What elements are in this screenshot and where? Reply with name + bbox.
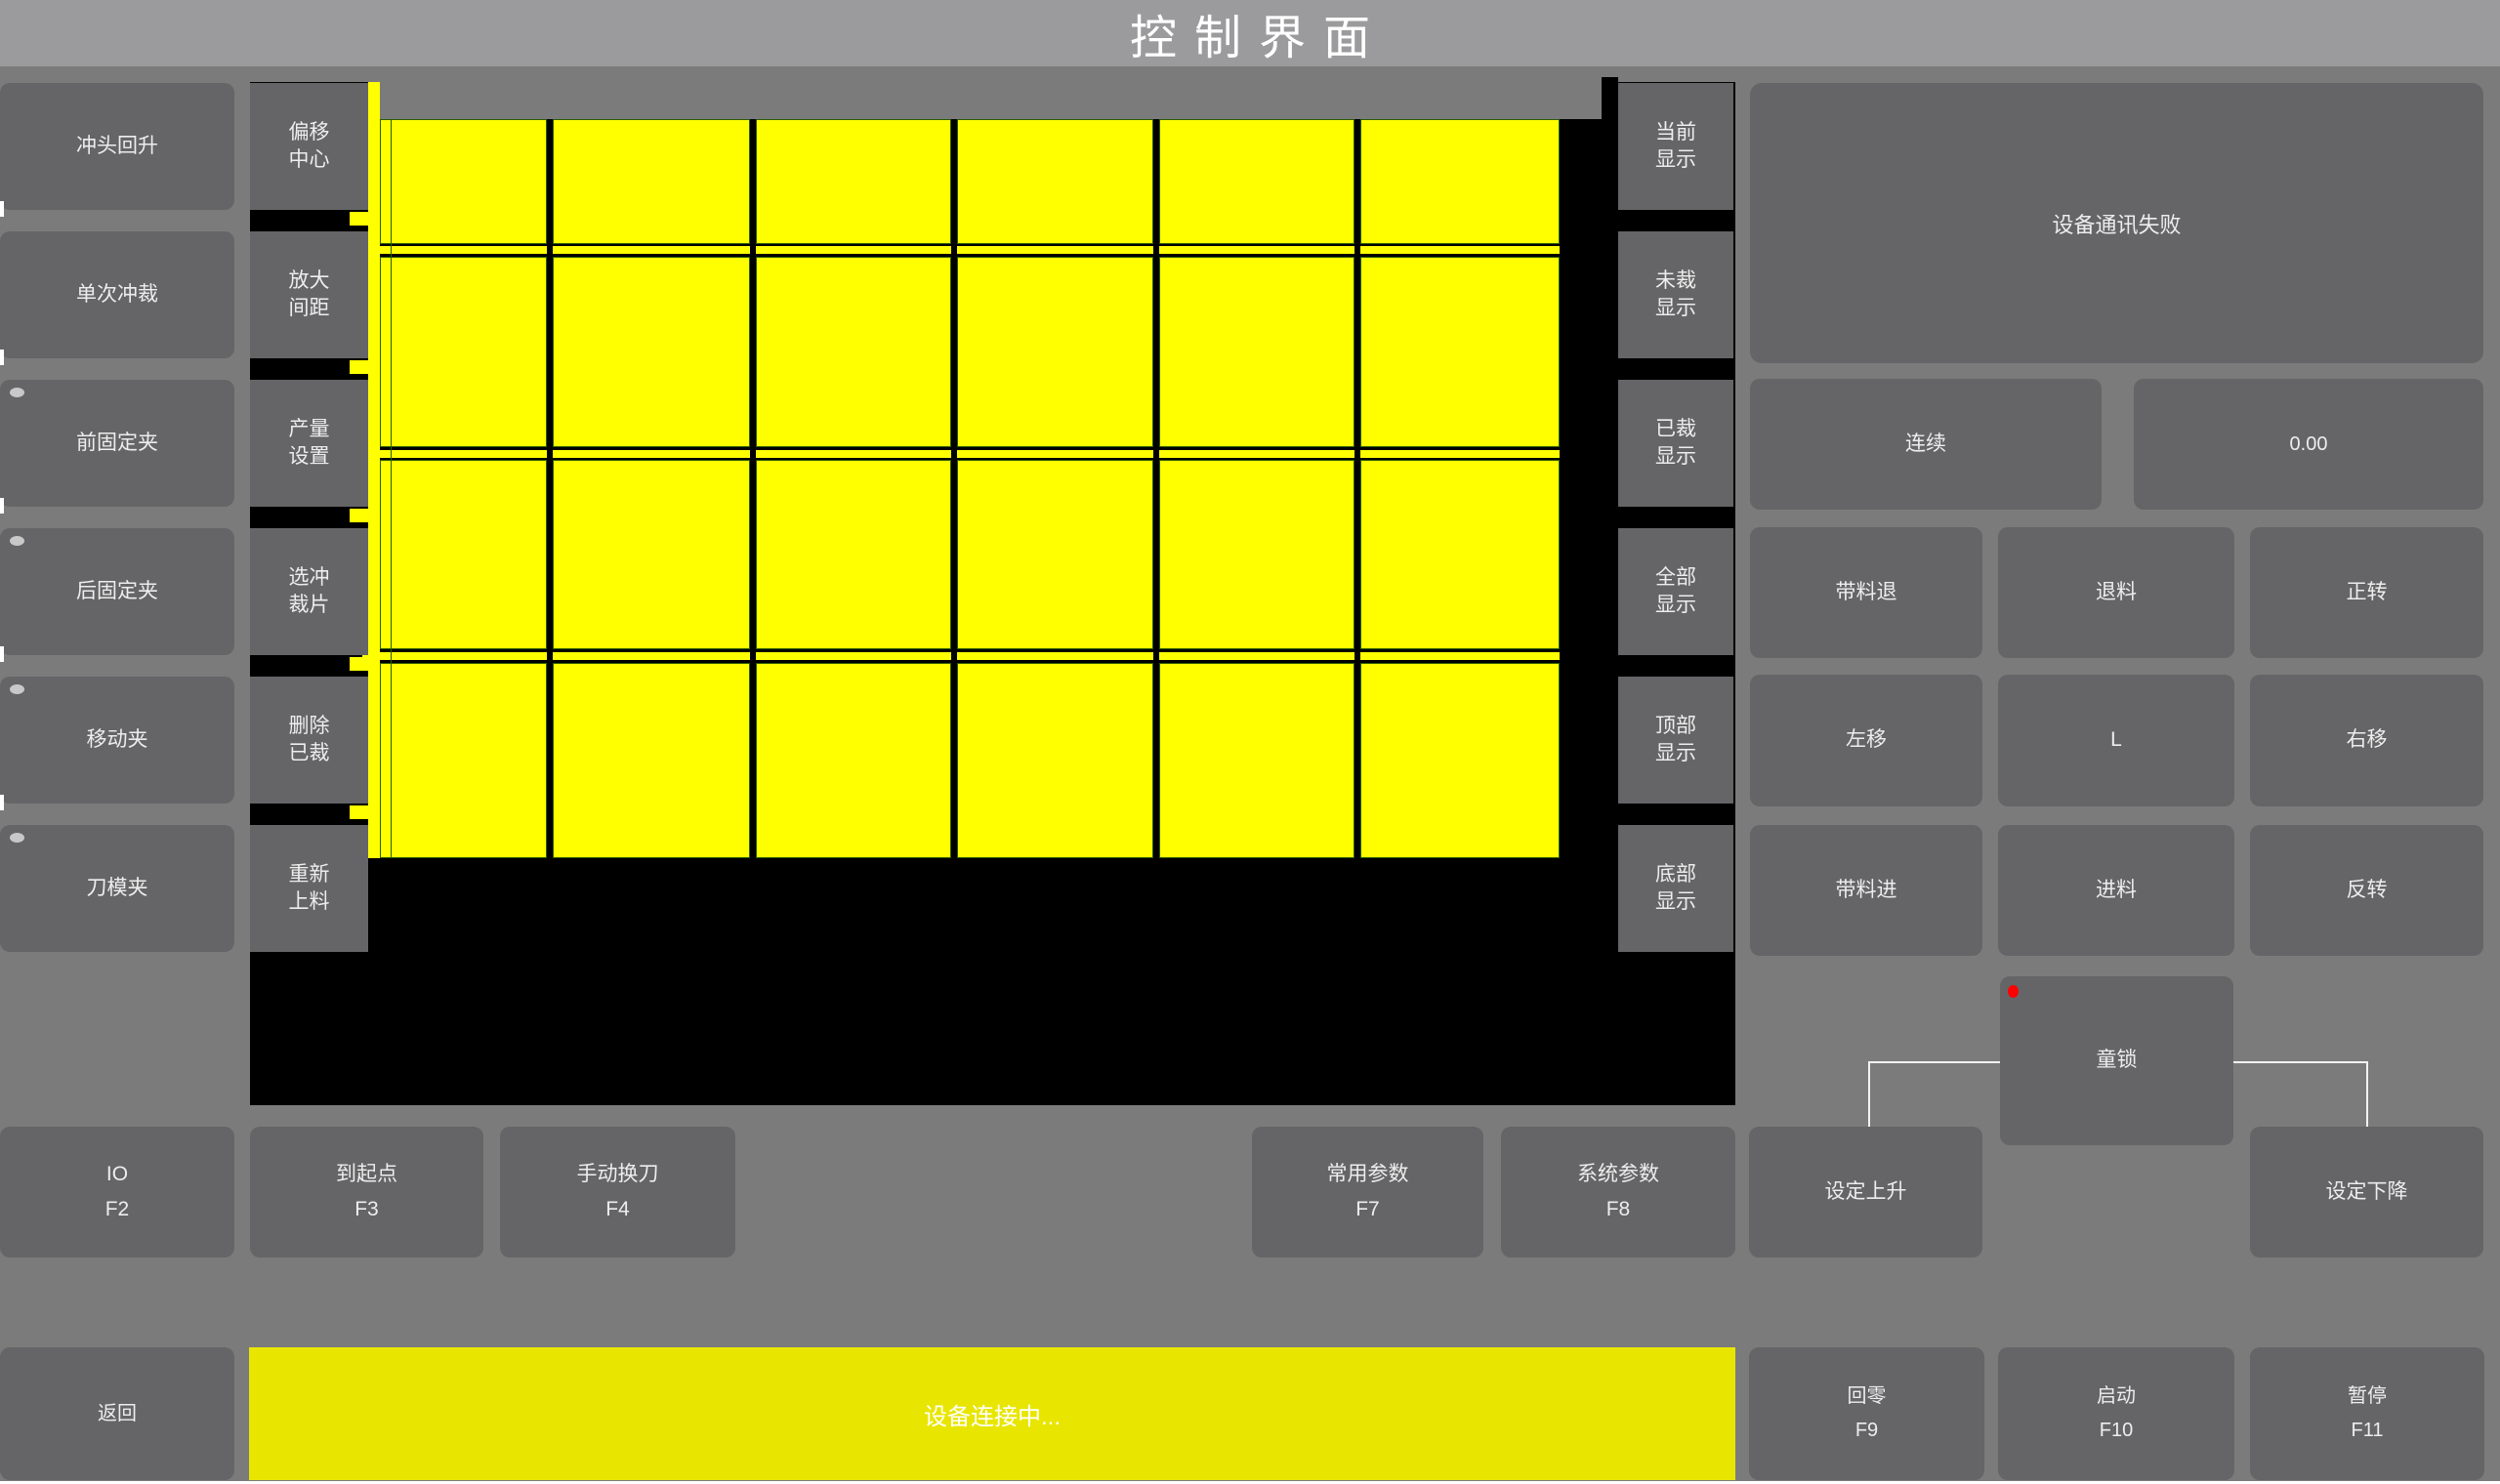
edge-tick-mark <box>0 350 4 365</box>
left-action-label: 刀模夹 <box>87 875 148 902</box>
cut-piece-r2-c4[interactable] <box>957 257 1153 447</box>
left-action-label: 后固定夹 <box>76 578 158 605</box>
bottom-key-label: 启动 <box>2097 1383 2136 1410</box>
display-filter-label-line: 全部 <box>1655 564 1696 592</box>
jog-button-r2-c2[interactable]: L <box>1998 675 2234 806</box>
jog-button-r1-c1[interactable]: 带料退 <box>1750 527 1982 658</box>
display-filter-label-line: 显示 <box>1655 592 1696 619</box>
edit-action-button-5[interactable]: 删除已裁 <box>250 677 368 804</box>
control-interface-screen: 控制界面 冲头回升单次冲裁前固定夹后固定夹移动夹刀模夹 偏移中心放大间距产量设置… <box>0 0 2500 1484</box>
speed-value-text: 0.00 <box>2290 432 2328 458</box>
edit-action-label-line: 裁片 <box>289 592 330 619</box>
status-message-panel: 设备通讯失败 <box>1750 83 2483 363</box>
edge-tick-mark <box>0 646 4 662</box>
function-key-button-2[interactable]: 到起点F3 <box>250 1127 483 1257</box>
function-key-code: F4 <box>605 1196 630 1223</box>
function-key-code: F8 <box>1606 1196 1631 1223</box>
jog-button-r1-c2[interactable]: 退料 <box>1998 527 2234 658</box>
state-indicator-icon <box>10 684 24 694</box>
function-key-label: 到起点 <box>336 1161 397 1188</box>
jog-button-r2-c3[interactable]: 右移 <box>2250 675 2483 806</box>
function-key-button-5[interactable]: 系统参数F8 <box>1501 1127 1735 1257</box>
function-key-code: F7 <box>1355 1196 1380 1223</box>
left-action-label: 冲头回升 <box>76 133 158 160</box>
cut-piece-r4-c6[interactable] <box>1360 663 1560 858</box>
left-action-label: 单次冲裁 <box>76 281 158 309</box>
edit-action-label-line: 偏移 <box>289 119 330 146</box>
edit-action-label-line: 间距 <box>289 295 330 322</box>
edge-tick-mark <box>0 201 4 217</box>
back-button-label: 返回 <box>98 1401 137 1427</box>
piece-inner-cut-line <box>391 119 392 858</box>
cut-piece-r2-c5[interactable] <box>1159 257 1354 447</box>
left-action-button-6[interactable]: 刀模夹 <box>0 825 234 952</box>
connection-status-text: 设备连接中... <box>924 1397 1061 1431</box>
cut-piece-r2-c3[interactable] <box>756 257 951 447</box>
bottom-key-label: 暂停 <box>2348 1383 2387 1410</box>
cut-piece-r4-c2[interactable] <box>553 663 750 858</box>
column-gap-strip <box>547 119 553 858</box>
cut-piece-r3-c5[interactable] <box>1159 460 1354 649</box>
left-action-label: 前固定夹 <box>76 430 158 457</box>
function-key-button-4[interactable]: 常用参数F7 <box>1252 1127 1483 1257</box>
state-indicator-icon <box>10 388 24 397</box>
jog-button-label: 进料 <box>2096 877 2137 904</box>
row-separator-band <box>362 652 1560 660</box>
display-filter-label-line: 已裁 <box>1655 416 1696 443</box>
display-filter-button-2[interactable]: 未裁显示 <box>1618 231 1733 358</box>
edit-action-label-line: 删除 <box>289 713 330 740</box>
canvas-top-right-notch <box>1602 77 1618 119</box>
connection-status-bar: 设备连接中... <box>249 1347 1735 1480</box>
display-filter-label-line: 显示 <box>1655 146 1696 174</box>
left-action-button-4[interactable]: 后固定夹 <box>0 528 234 655</box>
cut-piece-r1-c6[interactable] <box>1360 119 1560 244</box>
edit-action-button-4[interactable]: 选冲裁片 <box>250 528 368 655</box>
run-mode-button[interactable]: 连续 <box>1750 379 2102 510</box>
function-key-label: 手动换刀 <box>577 1161 659 1188</box>
childlock-connector-right-h <box>2233 1061 2368 1063</box>
jog-button-label: 带料退 <box>1836 579 1897 606</box>
cut-piece-r2-c6[interactable] <box>1360 257 1560 447</box>
edit-action-label-line: 重新 <box>289 861 330 888</box>
cut-piece-r3-c1[interactable] <box>380 460 547 649</box>
display-filter-label-line: 显示 <box>1655 443 1696 471</box>
row-separator-band <box>362 246 1560 254</box>
cut-piece-r4-c5[interactable] <box>1159 663 1354 858</box>
bottom-key-label: 回零 <box>1848 1383 1887 1410</box>
column-gap-strip <box>1153 119 1159 858</box>
bottom-key-button-2[interactable]: 启动F10 <box>1998 1347 2234 1480</box>
function-key-code: F3 <box>354 1196 379 1223</box>
speed-value-display: 0.00 <box>2134 379 2483 510</box>
left-action-label: 移动夹 <box>87 726 148 754</box>
strip-tab <box>350 212 368 226</box>
jog-button-label: 反转 <box>2347 877 2388 904</box>
back-button[interactable]: 返回 <box>0 1347 234 1480</box>
jog-button-r1-c3[interactable]: 正转 <box>2250 527 2483 658</box>
edit-action-label-line: 选冲 <box>289 564 330 592</box>
function-key-button-6[interactable]: 设定上升 <box>1749 1127 1982 1257</box>
jog-button-r3-c1[interactable]: 带料进 <box>1750 825 1982 956</box>
left-action-button-1[interactable]: 冲头回升 <box>0 83 234 210</box>
cut-piece-r1-c4[interactable] <box>957 119 1153 244</box>
left-action-button-2[interactable]: 单次冲裁 <box>0 231 234 358</box>
child-lock-alert-indicator-icon <box>2008 985 2019 998</box>
bottom-key-code: F11 <box>2352 1418 2384 1444</box>
column-gap-strip <box>1354 119 1360 858</box>
column-gap-strip <box>951 119 957 858</box>
edit-action-label-line: 放大 <box>289 268 330 295</box>
bottom-key-code: F10 <box>2100 1418 2133 1444</box>
function-key-button-7[interactable]: 设定下降 <box>2250 1127 2483 1257</box>
child-lock-button[interactable]: 童锁 <box>2000 976 2233 1145</box>
jog-button-label: 左移 <box>1846 726 1887 754</box>
material-edge-strip <box>368 82 380 858</box>
strip-tab <box>350 509 368 522</box>
cut-piece-r1-c1[interactable] <box>380 119 547 244</box>
display-filter-button-3[interactable]: 已裁显示 <box>1618 380 1733 507</box>
edit-action-button-2[interactable]: 放大间距 <box>250 231 368 358</box>
function-key-button-3[interactable]: 手动换刀F4 <box>500 1127 735 1257</box>
state-indicator-icon <box>10 833 24 843</box>
left-action-button-3[interactable]: 前固定夹 <box>0 380 234 507</box>
cut-piece-r2-c1[interactable] <box>380 257 547 447</box>
column-gap-strip <box>750 119 756 858</box>
display-filter-label-line: 底部 <box>1655 861 1696 888</box>
edit-action-label-line: 产量 <box>289 416 330 443</box>
cut-piece-r3-c6[interactable] <box>1360 460 1560 649</box>
cut-piece-r1-c3[interactable] <box>756 119 951 244</box>
childlock-connector-right-v <box>2366 1061 2368 1127</box>
display-filter-button-4[interactable]: 全部显示 <box>1618 528 1733 655</box>
edit-action-button-3[interactable]: 产量设置 <box>250 380 368 507</box>
function-key-code: F2 <box>105 1196 130 1223</box>
bottom-key-button-3[interactable]: 暂停F11 <box>2250 1347 2484 1480</box>
bottom-key-button-1[interactable]: 回零F9 <box>1749 1347 1984 1480</box>
edge-tick-mark <box>0 795 4 810</box>
strip-tab <box>350 805 368 819</box>
function-key-label: 设定上升 <box>1825 1178 1907 1206</box>
jog-button-r3-c3[interactable]: 反转 <box>2250 825 2483 956</box>
cut-piece-r3-c2[interactable] <box>553 460 750 649</box>
jog-button-r2-c1[interactable]: 左移 <box>1750 675 1982 806</box>
jog-button-label: 右移 <box>2347 726 2388 754</box>
jog-button-r3-c2[interactable]: 进料 <box>1998 825 2234 956</box>
function-key-label: 系统参数 <box>1577 1161 1659 1188</box>
strip-tab <box>350 360 368 374</box>
childlock-connector-left-h <box>1868 1061 2000 1063</box>
cut-piece-r4-c4[interactable] <box>957 663 1153 858</box>
cut-piece-r3-c3[interactable] <box>756 460 951 649</box>
cut-piece-r3-c4[interactable] <box>957 460 1153 649</box>
display-filter-label-line: 显示 <box>1655 888 1696 916</box>
child-lock-label: 童锁 <box>2097 1047 2138 1074</box>
function-key-label: 设定下降 <box>2326 1178 2408 1206</box>
jog-button-label: 正转 <box>2347 579 2388 606</box>
bottom-key-code: F9 <box>1855 1418 1878 1444</box>
strip-tab <box>350 657 368 671</box>
edit-action-button-1[interactable]: 偏移中心 <box>250 83 368 210</box>
title-bar: 控制界面 <box>0 0 2500 66</box>
cut-piece-r4-c1[interactable] <box>380 663 547 858</box>
page-title: 控制界面 <box>1112 0 1388 67</box>
edit-action-label-line: 中心 <box>289 146 330 174</box>
display-filter-label-line: 显示 <box>1655 740 1696 767</box>
display-filter-label-line: 顶部 <box>1655 713 1696 740</box>
edit-action-button-6[interactable]: 重新上料 <box>250 825 368 952</box>
display-filter-label-line: 未裁 <box>1655 268 1696 295</box>
state-indicator-icon <box>10 536 24 546</box>
status-message-text: 设备通讯失败 <box>2052 208 2181 239</box>
function-key-label: 常用参数 <box>1327 1161 1409 1188</box>
function-key-label: IO <box>106 1161 128 1188</box>
function-key-button-1[interactable]: IOF2 <box>0 1127 234 1257</box>
childlock-connector-left-v <box>1868 1061 1870 1127</box>
row-separator-band <box>362 450 1560 458</box>
cut-piece-r2-c2[interactable] <box>553 257 750 447</box>
jog-button-label: L <box>2110 726 2122 754</box>
jog-button-label: 带料进 <box>1836 877 1897 904</box>
edit-action-label-line: 上料 <box>289 888 330 916</box>
cut-piece-r1-c5[interactable] <box>1159 119 1354 244</box>
cut-piece-r4-c3[interactable] <box>756 663 951 858</box>
display-filter-button-6[interactable]: 底部显示 <box>1618 825 1733 952</box>
display-filter-label-line: 当前 <box>1655 119 1696 146</box>
cut-piece-r1-c2[interactable] <box>553 119 750 244</box>
edit-action-label-line: 设置 <box>289 443 330 471</box>
display-filter-button-5[interactable]: 顶部显示 <box>1618 677 1733 804</box>
canvas-top-band <box>380 82 1602 119</box>
edit-action-label-line: 已裁 <box>289 740 330 767</box>
jog-button-label: 退料 <box>2096 579 2137 606</box>
run-mode-label: 连续 <box>1905 431 1946 458</box>
display-filter-label-line: 显示 <box>1655 295 1696 322</box>
display-filter-button-1[interactable]: 当前显示 <box>1618 83 1733 210</box>
edge-tick-mark <box>0 498 4 514</box>
left-action-button-5[interactable]: 移动夹 <box>0 677 234 804</box>
